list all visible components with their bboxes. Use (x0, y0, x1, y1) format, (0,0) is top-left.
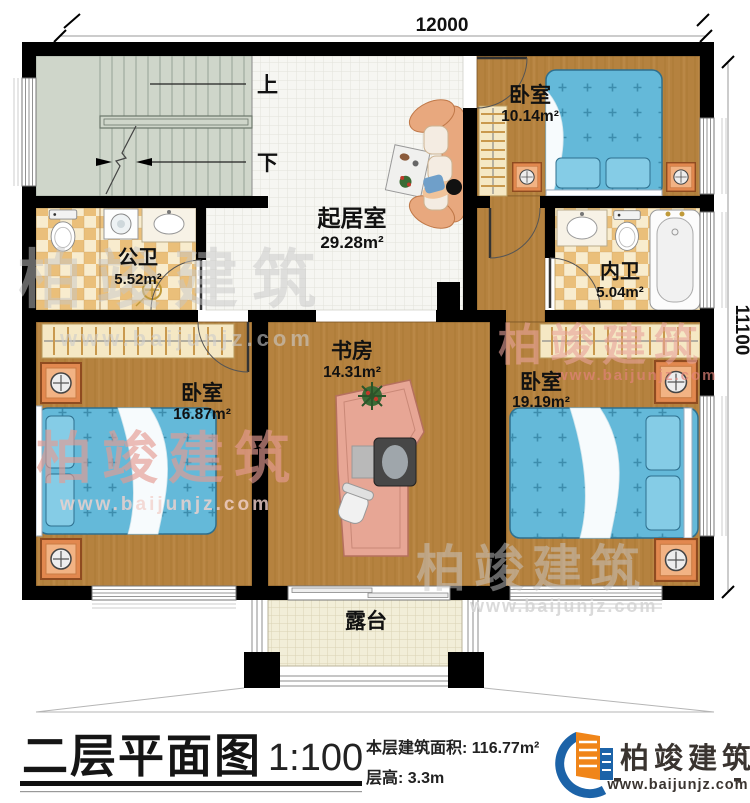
terrace-column-left (244, 652, 280, 688)
public-bath-area: 5.52m² (114, 271, 162, 288)
hallway-floor (477, 196, 545, 322)
floor-area-text: 本层建筑面积: 116.77m² (366, 738, 539, 757)
inner-bath-name: 内卫 (600, 259, 640, 283)
terrace-column-right (448, 652, 484, 688)
logo-brand-text: 柏竣建筑 (620, 741, 750, 775)
wall-bed-top-bottom-b (540, 196, 702, 208)
sink-basin (567, 217, 597, 239)
watermark-brand: 柏竣建筑 (18, 244, 330, 316)
bathtub-faucet-hot (666, 212, 671, 217)
wall-bed-top-bottom-a (463, 196, 490, 208)
living-name: 起居室 (318, 205, 387, 231)
sink-basin (154, 214, 184, 234)
plant-flower (374, 397, 378, 401)
bed-headboard (684, 408, 692, 538)
wall-innerbath-left (545, 208, 555, 258)
living-area: 29.28m² (320, 233, 384, 252)
wall-bedtop-left (463, 108, 477, 196)
wall-right-d (700, 536, 714, 586)
bed-headboard (546, 190, 662, 196)
computer-screen (382, 445, 408, 479)
wall-right-a (700, 56, 714, 118)
study-name: 书房 (331, 339, 373, 363)
title-underline-thin (20, 791, 362, 792)
wall-bottom-d (662, 586, 714, 600)
wall-stair-bottom (36, 196, 268, 208)
person-head (446, 179, 462, 195)
watermark-brand-red-right: 柏竣建筑 (498, 321, 706, 370)
plan-scale: 1:100 (268, 737, 363, 779)
floor-plan-page: 柏竣建筑 www.baijunjz.com 柏竣建筑 www.baijunjz.… (0, 0, 750, 803)
sofa-cushion (424, 126, 448, 154)
nightstand (41, 539, 81, 579)
bedroom-left-area: 16.87m² (173, 406, 231, 423)
stair-down-label: 下 (257, 152, 278, 175)
study-area: 14.31m² (323, 364, 381, 381)
desk-plant (358, 382, 386, 410)
wall-hallway-left (463, 208, 477, 310)
sink-faucet (580, 212, 584, 216)
stair-up-label: 上 (257, 74, 278, 97)
wall-left-a (22, 56, 36, 78)
wall-stub-column (437, 282, 460, 310)
wall-bottom-b (236, 586, 288, 600)
bed-pillow (646, 416, 680, 470)
wall-top (22, 42, 714, 56)
logo-url-text: www.baijunjz.com (606, 777, 748, 793)
wall-right-b (700, 194, 714, 212)
nightstand (667, 163, 696, 192)
inner-bath-area: 5.04m² (596, 284, 644, 301)
wall-mid-c (436, 310, 506, 322)
sink-faucet (167, 210, 171, 214)
dim-text-top: 12000 (416, 15, 469, 36)
logo-building-orange (576, 732, 600, 780)
bed-pillow (556, 158, 600, 188)
nightstand (655, 539, 697, 581)
plan-title: 二层平面图 (22, 730, 262, 782)
wall-bottom-a (22, 586, 92, 600)
watermark-brand-bottom: 柏竣建筑 (416, 541, 648, 597)
bathtub-basin (657, 218, 693, 302)
bedroom-top-name: 卧室 (509, 83, 551, 107)
washing-machine-drum (117, 220, 125, 228)
terrace-name: 露台 (345, 609, 387, 633)
bedroom-left-name: 卧室 (181, 381, 223, 405)
bathtub-faucet-cold (680, 212, 685, 217)
watermark-brand-red: 柏竣建筑 (36, 427, 300, 490)
toilet (614, 211, 640, 251)
logo-building-blue (600, 748, 613, 780)
sliding-panel-a (292, 588, 372, 593)
stair-handrail (100, 116, 252, 128)
watermark-url-red-right: www.baijunjz.com (555, 367, 717, 384)
watermark-url-bottom: www.baijunjz.com (469, 596, 657, 616)
plant-flower (366, 391, 370, 395)
bedroom-right-name: 卧室 (520, 370, 562, 394)
plant-fronds (358, 382, 386, 410)
bedroom-top-area: 10.14m² (501, 108, 559, 125)
nightstand (513, 163, 542, 192)
floor-plan-drawing: 柏竣建筑 www.baijunjz.com 柏竣建筑 www.baijunjz.… (0, 0, 750, 803)
watermark-url: www.baijunjz.com (59, 326, 314, 351)
dim-text-right: 11100 (731, 305, 750, 356)
floor-height-text: 层高: 3.3m (366, 768, 444, 787)
watermark-url-red: www.baijunjz.com (59, 494, 272, 515)
bedroom-right-area: 19.19m² (512, 394, 570, 411)
nightstand (41, 363, 81, 403)
public-bath-name: 公卫 (118, 246, 158, 269)
title-underline-thick (20, 781, 362, 786)
bed-pillow (646, 476, 680, 530)
bed-pillow (606, 158, 650, 188)
